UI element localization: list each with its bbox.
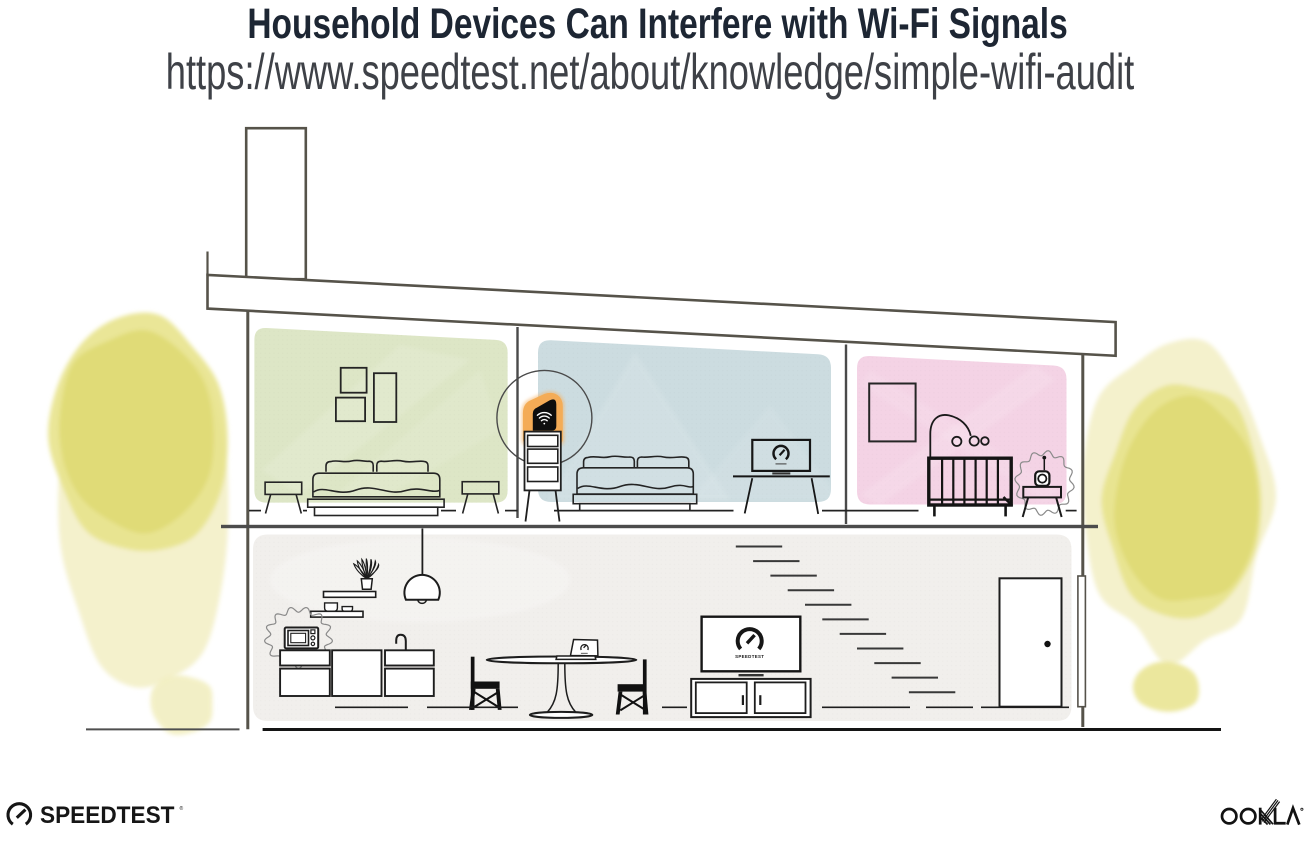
svg-text:®: ® [180,805,184,812]
svg-text:SPEEDTEST: SPEEDTEST [735,654,764,659]
svg-text:SPEEDTEST: SPEEDTEST [40,801,175,828]
